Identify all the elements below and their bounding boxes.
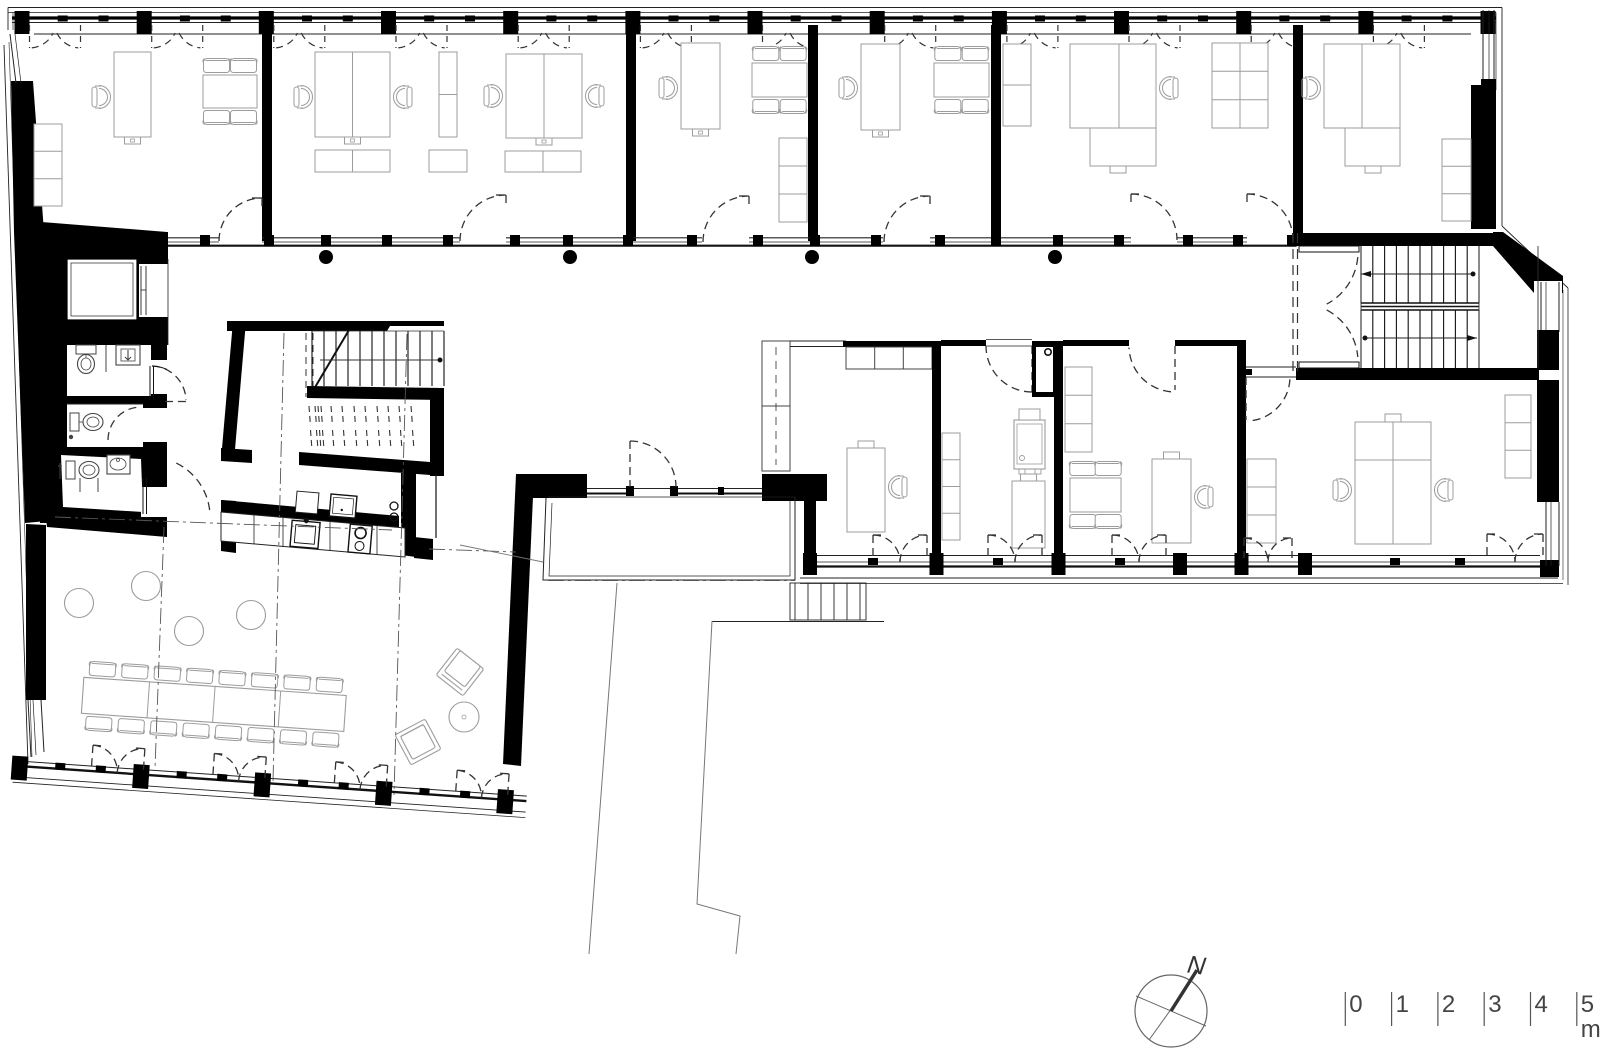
svg-text:1: 1 bbox=[1396, 991, 1409, 1018]
svg-text:0: 0 bbox=[1349, 991, 1362, 1018]
svg-text:5: 5 bbox=[1581, 991, 1594, 1018]
svg-text:2: 2 bbox=[1442, 991, 1455, 1018]
svg-text:4: 4 bbox=[1535, 991, 1548, 1018]
svg-text:m: m bbox=[1581, 1016, 1600, 1043]
svg-text:3: 3 bbox=[1488, 991, 1501, 1018]
